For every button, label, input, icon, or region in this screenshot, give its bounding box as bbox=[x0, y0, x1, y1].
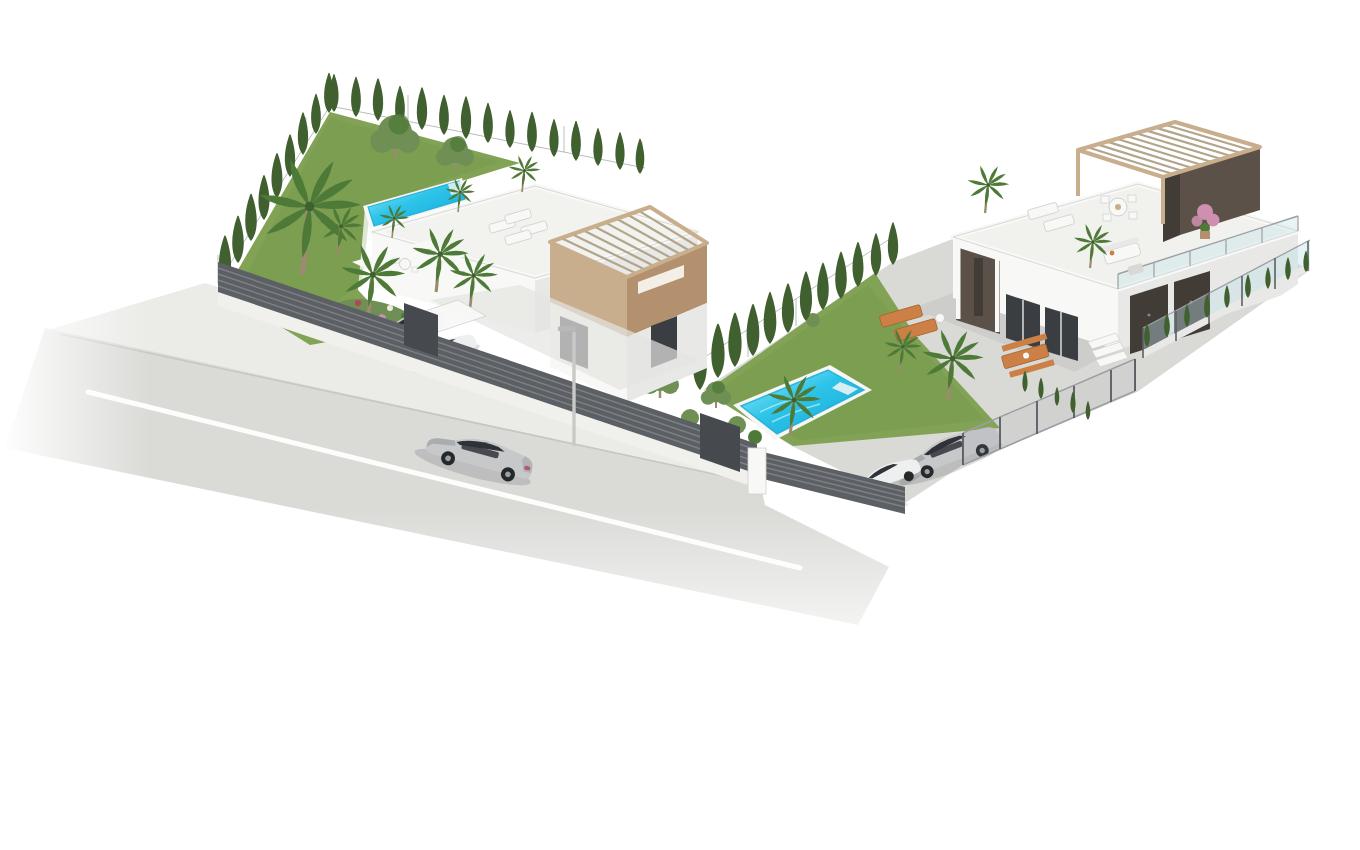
patio-table bbox=[400, 259, 411, 270]
porch-door bbox=[974, 258, 983, 316]
lamp-head bbox=[558, 326, 576, 332]
side-table bbox=[936, 314, 945, 323]
fence-pillar bbox=[748, 448, 766, 494]
porch-column bbox=[956, 247, 961, 319]
right-plot bbox=[701, 122, 1322, 575]
porch-column bbox=[995, 259, 1000, 332]
render-image: Isometric 3D architectural rendering of … bbox=[0, 0, 1360, 850]
porch bbox=[956, 247, 1000, 334]
